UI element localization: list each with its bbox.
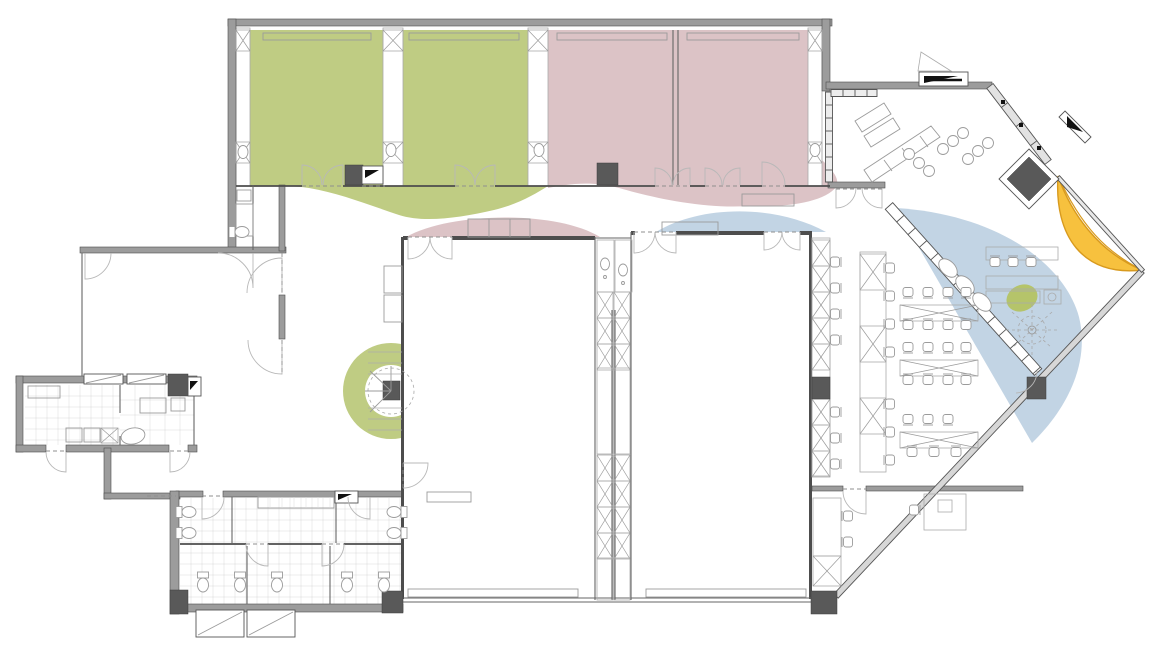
wall-kitchen-south-b (66, 445, 169, 452)
chair-seat (943, 343, 953, 352)
basin (619, 264, 628, 276)
chair-seat (923, 376, 933, 385)
office-chair (842, 537, 853, 547)
chair-seat (886, 427, 895, 437)
chair-seat (903, 343, 913, 352)
column (168, 374, 188, 396)
chair-seat (903, 415, 913, 424)
office-chair (903, 374, 913, 385)
office-chair (842, 511, 853, 521)
wall-large-left-west (401, 237, 404, 599)
office-chair (961, 343, 971, 354)
column (345, 165, 363, 185)
toilet-bowl (235, 578, 246, 592)
office-chair (831, 407, 842, 417)
wall-west-wing (80, 247, 286, 253)
zone-pink-rooms (548, 30, 837, 207)
wall-corridor-vert (104, 448, 111, 499)
diag-tick (1001, 100, 1005, 104)
toilet-bowl (198, 578, 209, 592)
wall-wc-room-east (279, 185, 285, 251)
lobby-stool (938, 144, 949, 155)
office-chair (943, 374, 953, 385)
floor-plan-page (0, 0, 1160, 650)
diag-tick (1019, 123, 1023, 127)
office-chair (884, 427, 895, 437)
chair-seat (844, 537, 853, 547)
lobby-stool (963, 154, 974, 165)
chair-seat (886, 455, 895, 465)
toilet (176, 528, 196, 539)
wall-large-left-north-a (403, 236, 408, 240)
chair-seat (961, 321, 971, 330)
chair-seat (1026, 258, 1036, 267)
toilet (272, 572, 283, 592)
office-chair (943, 288, 953, 299)
chair-seat (923, 321, 933, 330)
lobby-stool (948, 136, 959, 147)
column (597, 163, 618, 185)
toilet (387, 528, 407, 539)
lobby-stool (924, 166, 935, 177)
office-chair (910, 505, 921, 515)
office-chair (884, 455, 895, 465)
service-strip-3 (528, 28, 548, 186)
column (812, 377, 830, 399)
wall-kitchen-south-a (16, 445, 46, 452)
toilet-bowl (235, 227, 249, 238)
lobby-stool (983, 138, 994, 149)
basin (534, 144, 544, 157)
office-chair (831, 257, 842, 267)
chair-seat (831, 407, 840, 417)
toilet (387, 507, 407, 518)
chair-seat (903, 376, 913, 385)
office-chair (831, 433, 842, 443)
wall-washroom-north-a (176, 491, 203, 497)
wall-kitchen-west (16, 376, 23, 452)
column (1027, 377, 1046, 399)
office-chair (943, 319, 953, 330)
office-chair (943, 415, 953, 426)
chair-seat (961, 376, 971, 385)
toilet-bowl (379, 578, 390, 592)
chair-seat (929, 448, 939, 457)
office-chair (1026, 256, 1036, 267)
service-strip-2 (383, 28, 403, 186)
chair-seat (886, 291, 895, 301)
toilet-bowl (342, 578, 353, 592)
chair-seat (923, 415, 933, 424)
basin (238, 146, 248, 159)
chair-seat (831, 335, 840, 345)
office-chair (1008, 256, 1018, 267)
office-chair (951, 446, 961, 457)
office-chair (831, 459, 842, 469)
toilet (342, 572, 353, 592)
basin (386, 144, 396, 157)
ladder-band (826, 92, 833, 182)
office-chair (990, 256, 1000, 267)
glass-wall-lobby-north (831, 90, 877, 97)
wall-office-partition-a (812, 486, 843, 491)
toilet (176, 507, 196, 518)
office-chair (961, 319, 971, 330)
toilet-tank (176, 528, 182, 539)
chair-seat (831, 309, 840, 319)
chair-seat (910, 505, 919, 515)
office-chair (884, 263, 895, 273)
chair-seat (903, 321, 913, 330)
office-chair (831, 335, 842, 345)
chair-seat (831, 257, 840, 267)
service-strip-1 (236, 28, 250, 186)
chair-seat (831, 433, 840, 443)
toilet-tank (272, 572, 283, 578)
toilet-bowl (182, 507, 196, 518)
office-chair (961, 374, 971, 385)
chair-seat (886, 319, 895, 329)
basin (810, 144, 820, 157)
column-stair-core (383, 381, 400, 400)
office-chair (923, 288, 933, 299)
office-chair (923, 319, 933, 330)
chair-seat (961, 288, 971, 297)
chair-seat (903, 288, 913, 297)
wall-pink-east (822, 19, 830, 91)
floor-plan-svg (0, 0, 1160, 650)
column (382, 591, 403, 613)
chair-seat (831, 459, 840, 469)
office-chair (907, 446, 917, 457)
office-chair (903, 343, 913, 354)
wall-large-right-east (809, 231, 812, 599)
lobby-stool (904, 149, 915, 160)
wall-west (228, 19, 236, 252)
glass-wall-lobby-west (826, 92, 833, 182)
chair-seat (923, 288, 933, 297)
kitchen-door-box (188, 377, 201, 396)
toilet-tank (235, 572, 246, 578)
toilet-bowl (387, 528, 401, 539)
office-chair (923, 415, 933, 426)
office-chair (943, 343, 953, 354)
toilet-tank (198, 572, 209, 578)
office-chair (884, 319, 895, 329)
lobby-stool (958, 128, 969, 139)
toilet-tank (379, 572, 390, 578)
office-chair (884, 399, 895, 409)
chair-seat (844, 511, 853, 521)
toilet-tank (176, 507, 182, 518)
office-chair (903, 415, 913, 426)
toilet-tank (342, 572, 353, 578)
wall-lobby-stub (828, 182, 885, 188)
toilet (379, 572, 390, 592)
chair-seat (951, 448, 961, 457)
office-chair (831, 309, 842, 319)
column (170, 590, 188, 614)
service-strip-4 (808, 28, 822, 186)
chair-seat (990, 258, 1000, 267)
large-room-left-floor (404, 238, 595, 598)
toilet-tank (401, 507, 407, 518)
wall-kitchen-south-c (188, 445, 197, 452)
chair-seat (943, 376, 953, 385)
office-chair (929, 446, 939, 457)
chair-seat (943, 415, 953, 424)
column (811, 591, 837, 614)
toilet-bowl (387, 507, 401, 518)
chair-seat (831, 283, 840, 293)
diag-tick (1037, 146, 1041, 150)
chair-seat (886, 347, 895, 357)
toilet (198, 572, 209, 592)
chair-seat (1008, 258, 1018, 267)
chair-seat (943, 288, 953, 297)
wall-top (228, 19, 832, 26)
chair-seat (943, 321, 953, 330)
toilet-bowl (272, 578, 283, 592)
office-chair (923, 374, 933, 385)
chair-seat (886, 399, 895, 409)
toilet-tank (229, 227, 235, 238)
wall-large-right-north-b (676, 231, 764, 235)
wall-office-partition-b (866, 486, 1023, 491)
lobby-stool (973, 146, 984, 157)
office-chair (884, 347, 895, 357)
office-chair (961, 288, 971, 299)
toilet (235, 572, 246, 592)
office-chair (903, 288, 913, 299)
office-chair (884, 291, 895, 301)
office-chair (831, 283, 842, 293)
chair-seat (923, 343, 933, 352)
office-chair (903, 319, 913, 330)
toilet (229, 227, 249, 238)
chair-seat (886, 263, 895, 273)
ladder-band (831, 90, 877, 97)
lobby-stool (914, 158, 925, 169)
office-chair (923, 343, 933, 354)
wall-vestibule (279, 295, 285, 339)
chair-seat (907, 448, 917, 457)
basin (601, 258, 610, 270)
wall-washroom-north-b (223, 491, 403, 497)
toilet-bowl (182, 528, 196, 539)
chair-seat (961, 343, 971, 352)
toilet-tank (401, 528, 407, 539)
